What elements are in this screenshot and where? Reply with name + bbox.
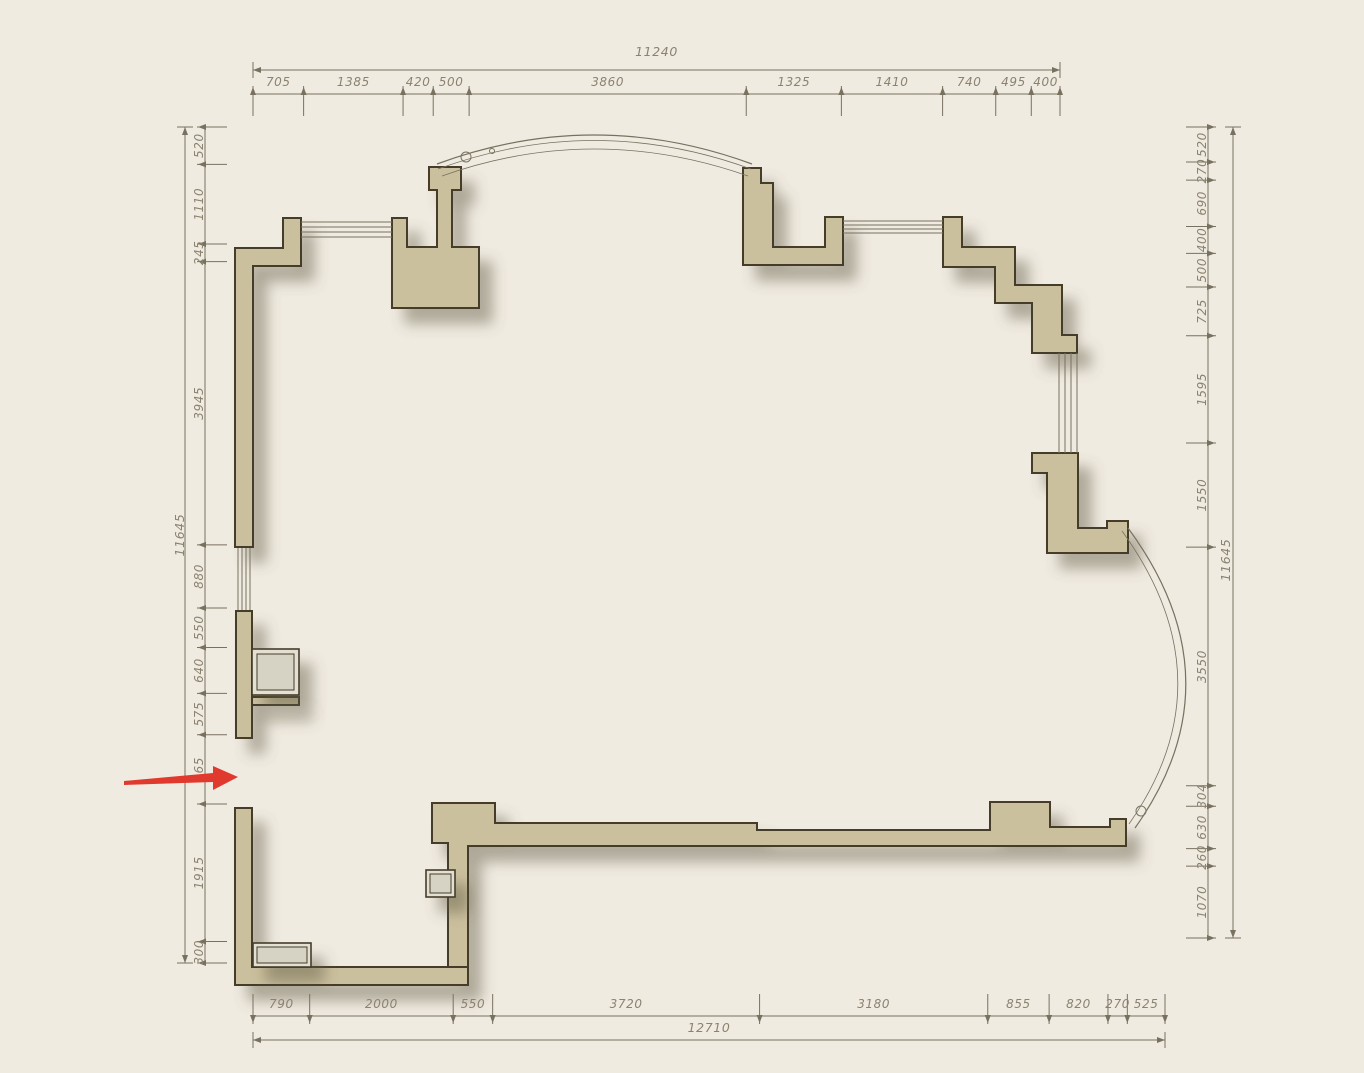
wall-pier-ledge	[252, 697, 299, 705]
dim-label: 1595	[1195, 373, 1209, 406]
dim-tick-arrow	[743, 87, 749, 95]
window-left-wall	[238, 548, 250, 610]
wall-bottom	[432, 802, 1126, 967]
dim-label: 270	[1105, 997, 1130, 1011]
corner-shelf-inner	[257, 947, 307, 963]
dim-label: 705	[266, 75, 291, 89]
dim-label: 300	[192, 940, 206, 965]
window-top-left	[301, 222, 392, 237]
dim-label: 270	[1195, 159, 1209, 184]
dim-tick-arrow	[985, 1015, 991, 1023]
dim-label: 3860	[591, 75, 624, 89]
dim-end-arrow	[182, 955, 188, 963]
dim-label: 820	[1066, 997, 1091, 1011]
dim-tick-arrow	[1046, 1015, 1052, 1023]
dim-label: 1410	[876, 75, 909, 89]
dim-label: 1550	[1195, 479, 1209, 512]
wall-bay-t-column	[392, 167, 479, 308]
dim-tick-arrow	[301, 87, 307, 95]
dim-chain-bottom: 79020005503720318085582027052512710	[250, 994, 1168, 1048]
dim-label: 245	[192, 240, 206, 265]
dim-overall-label: 12710	[688, 1020, 731, 1035]
dim-end-arrow	[182, 127, 188, 135]
dim-label: 520	[192, 133, 206, 158]
dim-tick-arrow	[1207, 333, 1215, 339]
dim-label: 3180	[857, 997, 890, 1011]
dim-label: 525	[1134, 997, 1159, 1011]
dim-tick-arrow	[430, 87, 436, 95]
dim-label: 740	[957, 75, 982, 89]
dim-label: 500	[1195, 258, 1209, 283]
dim-tick-arrow	[1207, 935, 1215, 941]
bay-arc-line	[442, 149, 748, 176]
wall-left-top	[235, 218, 301, 547]
curved-bay-right	[1122, 528, 1186, 828]
window-right-vertical	[1059, 353, 1077, 453]
dim-tick-arrow	[198, 605, 206, 611]
bay-arc-line	[438, 141, 751, 170]
curved-bay-top	[437, 135, 752, 176]
dim-label: 304	[1195, 784, 1209, 809]
dim-label: 3945	[192, 387, 206, 420]
dim-label: 400	[1195, 228, 1209, 253]
dim-label: 630	[1195, 815, 1209, 840]
dim-overall-label: 11645	[172, 514, 187, 557]
wall-right-c	[1032, 453, 1128, 553]
dim-tick-arrow	[198, 644, 206, 650]
wall-box-inner	[257, 654, 294, 690]
dim-tick-arrow	[466, 87, 472, 95]
red-arrow-annotation	[124, 766, 238, 790]
wall-top-right-u	[743, 168, 843, 265]
dim-label: 500	[439, 75, 464, 89]
dim-label: 1110	[192, 188, 206, 221]
dim-tick-arrow	[1207, 284, 1215, 290]
wall-left-pier	[236, 611, 252, 738]
dim-tick-arrow	[993, 87, 999, 95]
small-box-inner	[430, 874, 451, 893]
dim-tick-arrow	[1207, 440, 1215, 446]
dim-tick-arrow	[757, 1015, 763, 1023]
dim-end-arrow	[253, 67, 261, 73]
floor-plan-canvas: 7051385420500386013251410740495400112407…	[0, 0, 1364, 1073]
dim-label: 550	[461, 997, 486, 1011]
dim-label: 520	[1195, 132, 1209, 157]
dim-overall-label: 11240	[635, 44, 678, 59]
dim-tick-arrow	[250, 87, 256, 95]
dim-tick-arrow	[250, 1015, 256, 1023]
dim-label: 1385	[337, 75, 370, 89]
dim-label: 640	[192, 658, 206, 683]
dim-label: 495	[1001, 75, 1026, 89]
dim-tick-arrow	[198, 732, 206, 738]
dim-label: 725	[1195, 299, 1209, 324]
dim-tick-arrow	[1105, 1015, 1111, 1023]
dim-tick-arrow	[490, 1015, 496, 1023]
dim-end-arrow	[253, 1037, 261, 1043]
dim-label: 420	[406, 75, 431, 89]
dim-label: 855	[1006, 997, 1031, 1011]
dim-label: 260	[1195, 845, 1209, 870]
dim-end-arrow	[1230, 930, 1236, 938]
dim-label: 690	[1195, 191, 1209, 216]
dim-tick-arrow	[1162, 1015, 1168, 1023]
dim-tick-arrow	[450, 1015, 456, 1023]
dim-tick-arrow	[1207, 544, 1215, 550]
window-top-right	[843, 221, 943, 233]
dim-label: 1070	[1195, 886, 1209, 919]
dim-end-arrow	[1230, 127, 1236, 135]
floor-plan-svg: 7051385420500386013251410740495400112407…	[0, 0, 1364, 1073]
dim-end-arrow	[1052, 67, 1060, 73]
bay-arc-line	[1128, 528, 1186, 828]
dim-tick-arrow	[940, 87, 946, 95]
dim-chain-left: 5201110245394588055064057596519153001164…	[172, 124, 227, 966]
dim-tick-arrow	[198, 690, 206, 696]
dim-overall-label: 11645	[1218, 539, 1233, 582]
dim-label: 1325	[777, 75, 810, 89]
dim-end-arrow	[1157, 1037, 1165, 1043]
dim-tick-arrow	[1207, 124, 1215, 130]
bay-arc-line	[1122, 531, 1178, 824]
dim-tick-arrow	[838, 87, 844, 95]
dim-tick-arrow	[198, 801, 206, 807]
bay-arc-line	[437, 135, 752, 164]
dim-chain-right: 5202706904005007251595155035503046302601…	[1186, 124, 1241, 941]
dim-tick-arrow	[307, 1015, 313, 1023]
dim-label: 880	[192, 564, 206, 589]
dim-label: 2000	[365, 997, 398, 1011]
walls-layer	[235, 167, 1128, 985]
dim-label: 400	[1033, 75, 1058, 89]
dim-tick-arrow	[198, 542, 206, 548]
bay-circle-marker	[461, 152, 471, 162]
dim-label: 1915	[192, 856, 206, 889]
wall-steps	[943, 217, 1077, 353]
dim-tick-arrow	[198, 124, 206, 130]
dim-label: 575	[192, 702, 206, 727]
dim-tick-arrow	[198, 161, 206, 167]
dim-label: 3720	[610, 997, 643, 1011]
dim-chain-top: 705138542050038601325141074049540011240	[250, 44, 1063, 116]
dim-tick-arrow	[1124, 1015, 1130, 1023]
dim-label: 550	[192, 615, 206, 640]
dim-label: 790	[269, 997, 294, 1011]
dim-label: 3550	[1195, 650, 1209, 683]
